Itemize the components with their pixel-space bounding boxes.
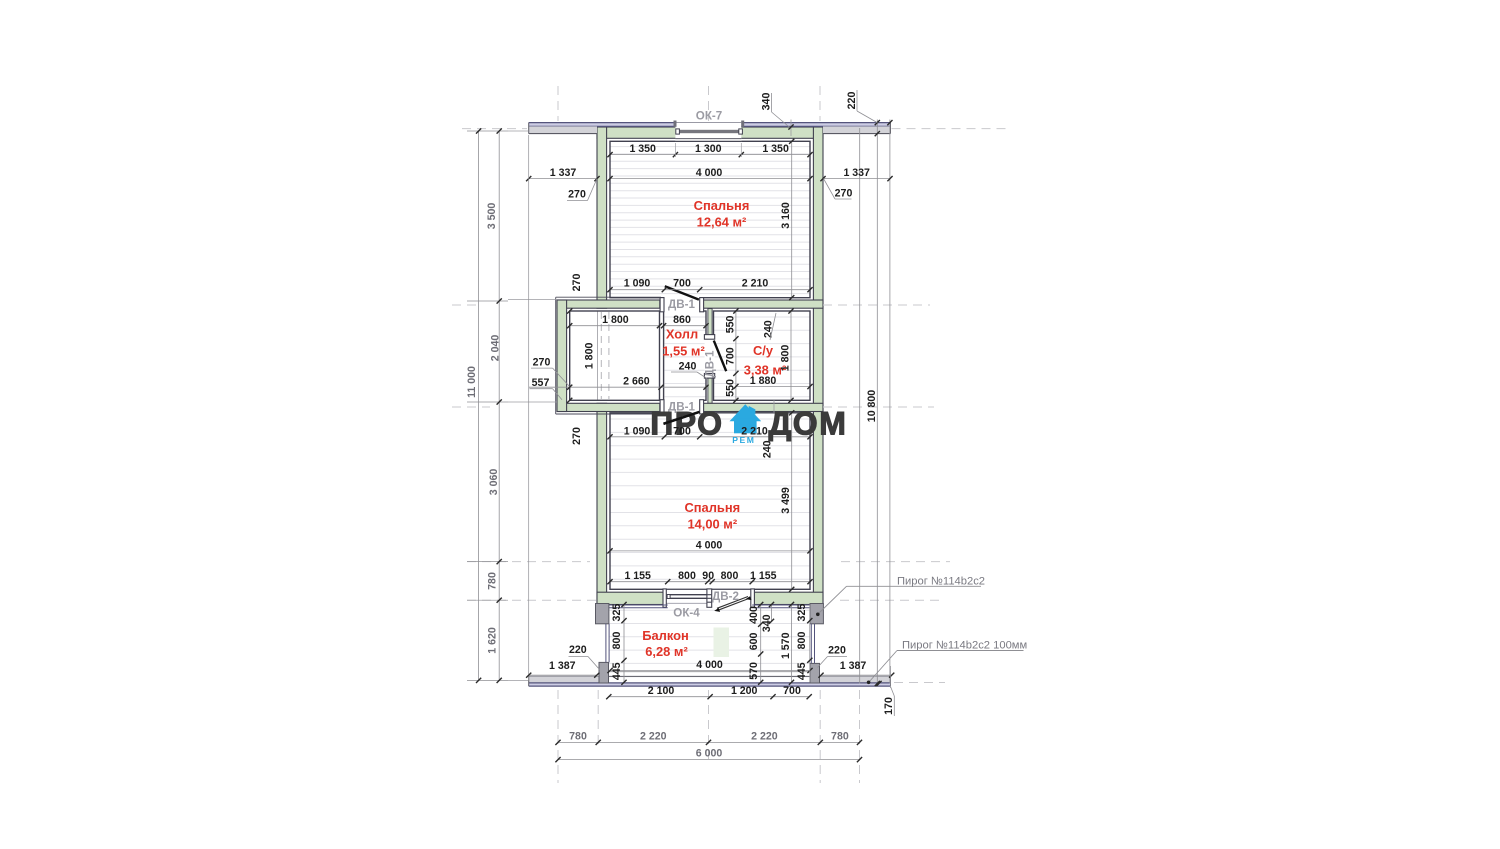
svg-text:240: 240 xyxy=(762,440,774,458)
svg-text:1 620: 1 620 xyxy=(487,627,499,654)
svg-text:10 800: 10 800 xyxy=(866,390,878,423)
svg-text:860: 860 xyxy=(673,314,691,326)
svg-text:2 210: 2 210 xyxy=(741,425,768,437)
svg-text:700: 700 xyxy=(673,277,691,289)
svg-text:1 155: 1 155 xyxy=(624,570,651,582)
svg-text:6 000: 6 000 xyxy=(696,748,723,760)
svg-text:Холл: Холл xyxy=(666,327,698,342)
svg-text:800: 800 xyxy=(678,570,696,582)
svg-text:Спальня: Спальня xyxy=(694,198,750,213)
svg-text:400: 400 xyxy=(748,606,760,624)
svg-text:ДВ-2: ДВ-2 xyxy=(712,590,739,603)
svg-text:780: 780 xyxy=(487,572,499,590)
svg-text:1 880: 1 880 xyxy=(750,375,777,387)
svg-text:ОК-7: ОК-7 xyxy=(696,110,722,123)
svg-text:3 499: 3 499 xyxy=(780,487,792,514)
svg-text:1 387: 1 387 xyxy=(840,660,867,672)
svg-text:3 500: 3 500 xyxy=(486,203,498,230)
svg-text:2 220: 2 220 xyxy=(751,730,778,742)
svg-text:ДВ-1: ДВ-1 xyxy=(668,298,695,311)
svg-text:170: 170 xyxy=(883,697,895,715)
svg-text:3 160: 3 160 xyxy=(780,202,792,229)
svg-text:1 200: 1 200 xyxy=(731,685,758,697)
svg-text:800: 800 xyxy=(611,632,623,650)
svg-text:700: 700 xyxy=(724,347,736,365)
svg-text:780: 780 xyxy=(831,730,849,742)
svg-text:ДОМ: ДОМ xyxy=(769,406,848,442)
svg-text:1 300: 1 300 xyxy=(695,143,722,155)
svg-text:1 090: 1 090 xyxy=(624,425,651,437)
svg-text:ДВ-1: ДВ-1 xyxy=(704,350,717,377)
svg-text:2 220: 2 220 xyxy=(640,730,667,742)
svg-text:С/у: С/у xyxy=(753,343,774,358)
svg-text:12,64 м²: 12,64 м² xyxy=(697,215,747,230)
svg-text:270: 270 xyxy=(835,188,853,200)
svg-text:2 660: 2 660 xyxy=(623,376,650,388)
svg-text:550: 550 xyxy=(724,315,736,333)
svg-text:Пирог №114b2c2 100мм: Пирог №114b2c2 100мм xyxy=(902,640,1027,652)
svg-text:6,28 м²: 6,28 м² xyxy=(645,644,688,659)
svg-text:445: 445 xyxy=(611,662,623,680)
svg-text:90: 90 xyxy=(702,570,714,582)
svg-text:340: 340 xyxy=(761,93,773,111)
svg-text:600: 600 xyxy=(748,632,760,650)
svg-text:4 000: 4 000 xyxy=(696,539,723,551)
svg-text:270: 270 xyxy=(533,357,551,369)
svg-text:4 000: 4 000 xyxy=(696,659,723,671)
svg-text:270: 270 xyxy=(568,189,586,201)
svg-text:325: 325 xyxy=(611,604,623,622)
svg-text:Пирог №114b2c2: Пирог №114b2c2 xyxy=(897,576,985,588)
svg-text:2 100: 2 100 xyxy=(648,685,675,697)
svg-text:220: 220 xyxy=(828,644,846,656)
svg-text:240: 240 xyxy=(679,361,697,373)
svg-text:270: 270 xyxy=(571,427,583,445)
svg-text:1 350: 1 350 xyxy=(762,143,789,155)
svg-text:570: 570 xyxy=(748,662,760,680)
svg-text:270: 270 xyxy=(571,274,583,292)
svg-text:4 000: 4 000 xyxy=(696,167,723,179)
svg-text:1 350: 1 350 xyxy=(629,143,656,155)
svg-text:445: 445 xyxy=(796,662,808,680)
svg-text:11 000: 11 000 xyxy=(466,366,478,398)
svg-text:800: 800 xyxy=(796,632,808,650)
svg-text:1 337: 1 337 xyxy=(843,167,870,179)
svg-text:325: 325 xyxy=(796,604,808,622)
svg-text:700: 700 xyxy=(673,425,691,437)
svg-text:1 387: 1 387 xyxy=(549,660,576,672)
svg-text:Балкон: Балкон xyxy=(642,628,689,643)
svg-text:1 337: 1 337 xyxy=(550,167,577,179)
svg-text:1 155: 1 155 xyxy=(750,570,777,582)
svg-text:2 210: 2 210 xyxy=(742,277,769,289)
svg-text:220: 220 xyxy=(569,644,587,656)
svg-text:557: 557 xyxy=(532,377,550,389)
svg-text:700: 700 xyxy=(783,685,801,697)
svg-text:3 060: 3 060 xyxy=(488,469,500,496)
svg-text:220: 220 xyxy=(846,92,858,110)
svg-text:ОК-4: ОК-4 xyxy=(673,607,700,620)
svg-text:2 040: 2 040 xyxy=(490,335,502,362)
svg-text:1 570: 1 570 xyxy=(780,632,792,659)
svg-text:780: 780 xyxy=(569,730,587,742)
svg-text:Спальня: Спальня xyxy=(684,500,740,515)
svg-text:1 800: 1 800 xyxy=(780,345,792,372)
svg-text:1,55 м²: 1,55 м² xyxy=(662,344,705,359)
svg-text:1 800: 1 800 xyxy=(602,314,629,326)
svg-text:14,00 м²: 14,00 м² xyxy=(687,517,737,532)
svg-text:1 090: 1 090 xyxy=(624,277,651,289)
svg-text:1 800: 1 800 xyxy=(583,343,595,370)
svg-text:800: 800 xyxy=(721,570,739,582)
